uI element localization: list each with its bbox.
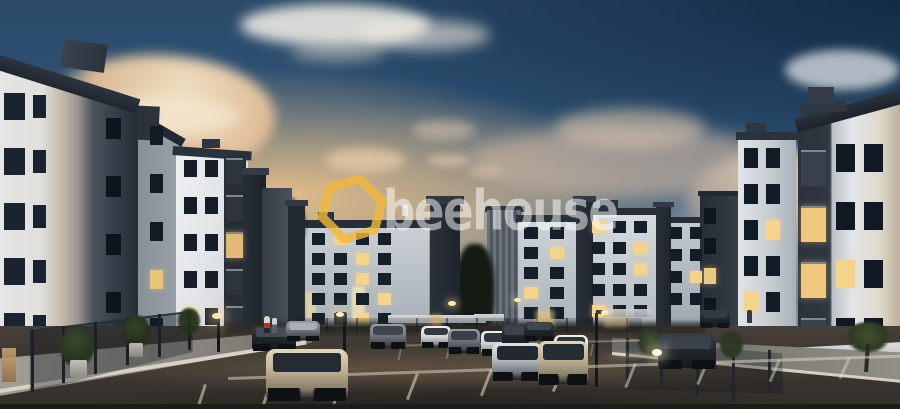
chimney-left-2-cap xyxy=(285,200,308,206)
c2-windows-9 xyxy=(592,284,605,296)
l1-windows-dark-band-1 xyxy=(106,176,121,197)
l5-windows-4 xyxy=(312,253,325,265)
c1-windows-4 xyxy=(524,267,538,279)
r3-windows-0 xyxy=(704,208,716,224)
planter-1 xyxy=(70,360,87,377)
bldg-left-5-roof xyxy=(300,220,432,228)
fence-post-right-5 xyxy=(768,350,771,392)
l5-windows-13 xyxy=(334,293,347,305)
l2-windows-1 xyxy=(150,174,163,193)
l3-balconies-1 xyxy=(226,195,243,221)
r2-windows-5 xyxy=(766,220,780,240)
c2-windows-2 xyxy=(634,221,647,233)
chimney-center-2-cap xyxy=(653,202,674,207)
c3-windows-1 xyxy=(690,227,702,239)
l3-windows-3 xyxy=(205,197,218,214)
l2-windows-2 xyxy=(150,222,163,241)
r1-windows-2 xyxy=(836,202,855,230)
suv-silver xyxy=(492,343,542,380)
r2-windows-3 xyxy=(766,184,780,204)
street-lamp-left-pole xyxy=(217,318,220,352)
l1-windows-b-0 xyxy=(33,95,46,118)
r2-windows-1 xyxy=(766,148,780,168)
c1-windows-2 xyxy=(524,247,538,259)
bush-3 xyxy=(178,308,200,334)
bldg-left-1-roofbox xyxy=(60,39,107,73)
planter-2 xyxy=(129,343,143,357)
lamp-glow-far-2 xyxy=(514,298,521,302)
bldg-center-2-roof xyxy=(584,208,660,215)
l5-windows-6 xyxy=(356,253,369,265)
r2-windows-9 xyxy=(766,292,780,312)
chimney-center-2 xyxy=(656,204,671,335)
bush-right-2 xyxy=(720,331,743,358)
bldg-center-1-roof xyxy=(516,215,582,222)
r3-windows-2 xyxy=(704,268,716,284)
c2-windows-8 xyxy=(634,263,647,275)
bottom-edge xyxy=(0,404,900,409)
bldg-right-1-roofbox xyxy=(808,87,834,104)
car-gray-mid-2 xyxy=(448,329,480,353)
entry-door-light-left xyxy=(2,348,16,382)
c1-windows-7 xyxy=(550,287,564,299)
street-lamp-left-glow xyxy=(212,313,222,319)
l1-windows-dark-band-3 xyxy=(106,292,121,313)
cloud-center-1 xyxy=(325,148,405,172)
r2-windows-7 xyxy=(766,256,780,276)
c1-windows-3 xyxy=(550,247,564,259)
l5-windows-10 xyxy=(356,273,369,285)
r1-windows-0 xyxy=(836,144,855,172)
l1-windows-b-1 xyxy=(33,150,46,173)
r2-windows-4 xyxy=(744,220,758,240)
c2-windows-4 xyxy=(613,242,626,254)
r1-windows-1 xyxy=(864,144,883,172)
l5-windows-8 xyxy=(312,273,325,285)
c1-windows-5 xyxy=(550,267,564,279)
l1-windows-a-0 xyxy=(4,93,25,120)
c2-windows-11 xyxy=(634,284,647,296)
residential-complex-dusk-render xyxy=(0,0,900,409)
l3-windows-4 xyxy=(184,234,197,251)
l5-windows-3 xyxy=(378,233,391,245)
chimney-center-1-cap xyxy=(573,196,596,202)
c2-windows-6 xyxy=(592,263,605,275)
l5-windows-7 xyxy=(378,253,391,265)
l1-windows-a-2 xyxy=(4,203,25,230)
l1-windows-a-3 xyxy=(4,258,25,285)
c2-windows-3 xyxy=(592,242,605,254)
car-white-mid xyxy=(421,326,451,347)
car-gray-mid xyxy=(370,324,406,348)
l1-windows-b-2 xyxy=(33,205,46,228)
fence-post-left-3 xyxy=(94,322,97,374)
lamp-glow-2 xyxy=(601,310,609,315)
chimney-center-1 xyxy=(576,198,593,335)
fence-post-left-1 xyxy=(31,330,34,392)
lamp-glow-1 xyxy=(336,312,344,317)
l5-windows-15 xyxy=(378,293,391,305)
l3-windows-2 xyxy=(184,197,197,214)
l5-windows-1 xyxy=(334,233,347,245)
l3-balconies-3 xyxy=(226,269,243,295)
r1-balconies-0 xyxy=(801,150,826,186)
l3-balconies-2 xyxy=(226,232,243,258)
c3-windows-7 xyxy=(690,293,702,305)
car-gray-parked xyxy=(286,321,320,340)
l1-windows-dark-band-0 xyxy=(106,118,121,139)
chimney-left-3-cap xyxy=(426,196,464,204)
l3-windows-6 xyxy=(184,271,197,288)
c1-windows-6 xyxy=(524,287,538,299)
cloud-wisp-1b xyxy=(360,20,490,50)
l1-windows-a-1 xyxy=(4,148,25,175)
r2-windows-8 xyxy=(744,292,758,312)
l3-windows-0 xyxy=(184,160,197,177)
bldg-center-2-roofbox xyxy=(600,200,618,209)
r2-windows-2 xyxy=(744,184,758,204)
lamp-glow-far-1 xyxy=(448,301,456,306)
bldg-left-5-roofbox xyxy=(318,212,334,221)
c3-windows-0 xyxy=(670,227,682,239)
l1-windows-dark-band-2 xyxy=(106,234,121,255)
r1-windows-4 xyxy=(836,260,855,288)
fence-post-left-5 xyxy=(158,314,161,357)
l5-windows-11 xyxy=(378,273,391,285)
l1-windows-b-3 xyxy=(33,260,46,283)
car-dark-far-right xyxy=(700,310,730,327)
r1-windows-5 xyxy=(864,260,883,288)
c3-windows-3 xyxy=(690,249,702,261)
cloud-tiny-1 xyxy=(428,154,470,167)
c2-windows-5 xyxy=(634,242,647,254)
c3-windows-5 xyxy=(690,271,702,283)
suv-dark-moving xyxy=(658,334,716,368)
chimney-left-2 xyxy=(288,204,305,334)
bldg-right-2-roof xyxy=(736,132,800,140)
cloud-wisp-1c xyxy=(290,42,385,62)
headlight-beam xyxy=(600,350,654,362)
person-balcony xyxy=(402,204,408,216)
l5-windows-14 xyxy=(356,293,369,305)
l3-windows-1 xyxy=(205,160,218,177)
l5-windows-9 xyxy=(334,273,347,285)
lamp-pole-2 xyxy=(595,313,598,387)
bldg-right-2-roofbox xyxy=(746,123,766,132)
cloud-center-2 xyxy=(412,120,476,140)
l3-windows-7 xyxy=(205,271,218,288)
car-dark-road xyxy=(524,322,554,340)
r2-windows-0 xyxy=(744,148,758,168)
cloud-right-wisp xyxy=(785,50,900,90)
l2-windows-3 xyxy=(150,270,163,289)
c3-windows-4 xyxy=(670,271,682,283)
cloud-tiny-2 xyxy=(468,166,504,177)
c3-windows-2 xyxy=(670,249,682,261)
entry-glow-5 xyxy=(604,316,628,327)
person-red-shirt xyxy=(264,316,270,333)
c1-windows-1 xyxy=(550,227,564,239)
r3-windows-1 xyxy=(704,238,716,254)
l3-windows-5 xyxy=(205,234,218,251)
l5-windows-5 xyxy=(334,253,347,265)
suv-champagne-2 xyxy=(538,341,588,384)
c1-windows-0 xyxy=(524,227,538,239)
cloud-band-center-right-2 xyxy=(555,108,705,148)
person-right-far xyxy=(747,310,752,323)
l5-windows-12 xyxy=(312,293,325,305)
bldg-left-3-roofbox xyxy=(202,139,220,148)
r1-balconies-2 xyxy=(801,262,826,298)
c3-windows-6 xyxy=(670,293,682,305)
r2-windows-6 xyxy=(744,256,758,276)
suv-champagne-foreground xyxy=(266,349,348,399)
c2-windows-0 xyxy=(592,221,605,233)
headlight-glow xyxy=(652,349,662,356)
r1-balconies-1 xyxy=(801,206,826,242)
c2-windows-7 xyxy=(613,263,626,275)
l3-balconies-0 xyxy=(226,158,243,184)
c2-windows-1 xyxy=(613,221,626,233)
r1-windows-3 xyxy=(864,202,883,230)
l2-windows-0 xyxy=(150,126,163,145)
person-gray xyxy=(272,318,277,333)
screenshot-root: beehouse xyxy=(0,0,900,409)
l5-windows-2 xyxy=(356,233,369,245)
chimney-left-1-cap xyxy=(243,168,269,175)
c2-windows-10 xyxy=(613,284,626,296)
l5-windows-0 xyxy=(312,233,325,245)
